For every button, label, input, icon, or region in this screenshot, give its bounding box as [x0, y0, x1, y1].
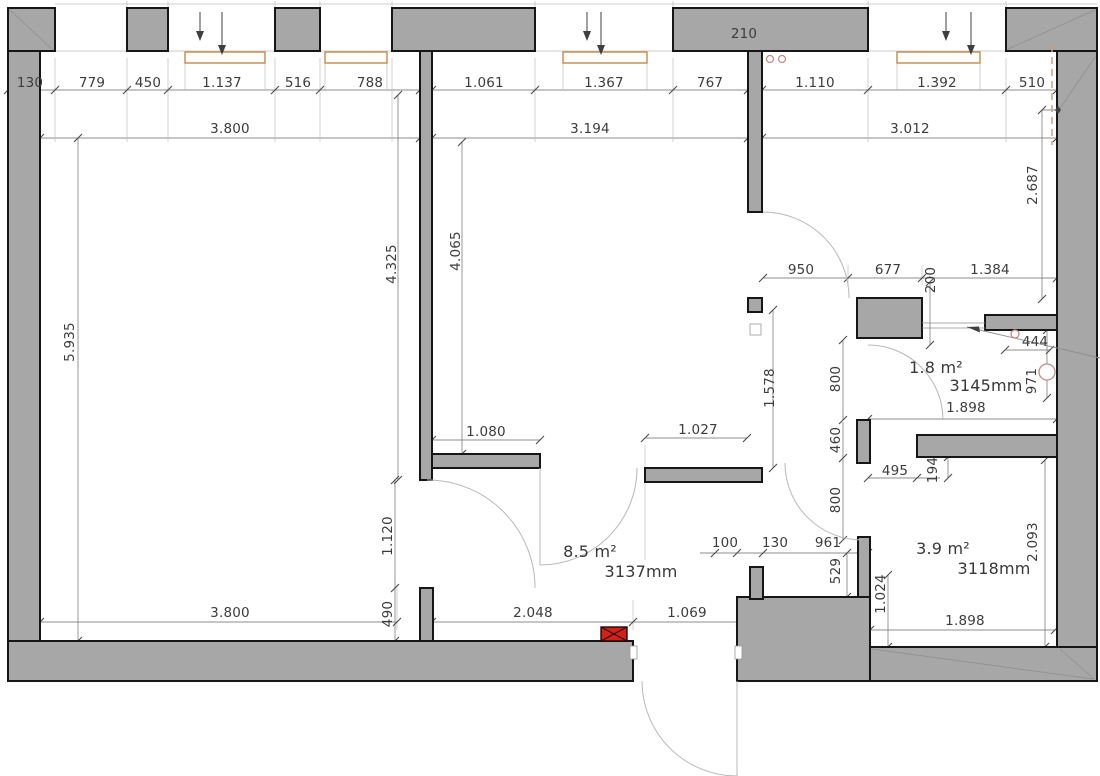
room-area-label: 1.8 m²: [909, 358, 963, 377]
wall-segment: [748, 51, 762, 212]
wall-segment: [985, 315, 1057, 330]
wall-segment: [645, 468, 762, 482]
dim-label: 1.027: [678, 422, 718, 438]
door-arc: [642, 681, 737, 776]
window-sill: [185, 52, 265, 63]
dim-label: 495: [882, 463, 908, 479]
dim-label: 1.578: [762, 368, 778, 408]
dim-label: 194: [925, 457, 941, 483]
window-sill: [563, 52, 647, 63]
dim-label: 4.325: [384, 244, 400, 284]
wall-segment: [127, 8, 168, 51]
dim-label: 510: [1019, 75, 1045, 91]
window-sill: [325, 52, 387, 63]
dim-label: 1.061: [464, 75, 504, 91]
dim-label: 1.120: [380, 516, 396, 556]
wall-segment: [857, 298, 922, 338]
dim-label: 767: [697, 75, 723, 91]
dim-label: 100: [712, 535, 738, 551]
dim-label: 788: [357, 75, 383, 91]
door-arc: [868, 345, 943, 420]
down-arrow-icon: [196, 31, 204, 41]
wall-segment: [1057, 8, 1097, 681]
dim-label: 200: [923, 267, 939, 293]
wall-segment: [8, 8, 40, 681]
room-length-label: 3137mm: [604, 562, 677, 581]
wall-segment: [432, 454, 540, 468]
dim-label: 779: [79, 75, 105, 91]
wall-segment: [750, 567, 763, 599]
door-arc: [763, 212, 849, 298]
dim-label: 516: [285, 75, 311, 91]
dim-label: 1.024: [873, 574, 889, 614]
dim-label: 130: [762, 535, 788, 551]
dimension-lines: [4, 40, 1096, 651]
room-labels: 8.5 m² 3137mm 1.8 m² 3145mm 3.9 m² 3118m…: [563, 358, 1030, 581]
wall-segment: [275, 8, 320, 51]
dim-label: 2.093: [1025, 522, 1041, 562]
wall-segment: [8, 641, 633, 681]
wall-segment: [748, 298, 762, 312]
dim-label: 1.069: [667, 605, 707, 621]
dim-label: 2.687: [1025, 165, 1041, 205]
wall-segment: [420, 51, 432, 480]
dim-label: 800: [828, 487, 844, 513]
dim-label: 444: [1022, 334, 1048, 350]
dim-label: 1.392: [917, 75, 957, 91]
window-sill: [897, 52, 980, 63]
floor-plan-drawing: 130 779 450 1.137 516 788 1.061 1.367 76…: [0, 0, 1100, 776]
wall-segment: [737, 597, 870, 681]
wall-segment: [392, 8, 535, 51]
wall-segment: [420, 588, 433, 641]
down-arrow-icon: [583, 31, 591, 41]
window-sills: [185, 52, 980, 63]
dim-label: 3.194: [570, 121, 610, 137]
floor-plan-canvas: 130 779 450 1.137 516 788 1.061 1.367 76…: [0, 0, 1100, 776]
dim-label: 1.137: [202, 75, 242, 91]
room-length-label: 3145mm: [949, 376, 1022, 395]
dim-label: 529: [828, 558, 844, 584]
dim-label: 800: [828, 366, 844, 392]
room-area-label: 8.5 m²: [563, 542, 617, 561]
dim-label: 3.800: [210, 121, 250, 137]
fixture-circle: [1011, 330, 1019, 338]
wall-socket: [750, 324, 761, 335]
fixture-circle: [779, 56, 786, 63]
dim-label: 2.048: [513, 605, 553, 621]
dim-label: 450: [135, 75, 161, 91]
wall-segment: [673, 8, 868, 51]
dim-label: 950: [788, 262, 814, 278]
dim-label: 1.367: [584, 75, 624, 91]
dim-label: 1.898: [946, 400, 986, 416]
dim-label: 130: [17, 75, 43, 91]
dim-label: 961: [815, 535, 841, 551]
wall-segment: [858, 537, 870, 597]
fixture-circle: [1039, 364, 1055, 380]
wall-corner-diagonals: [10, 10, 1095, 679]
dim-label: 3.800: [210, 605, 250, 621]
dim-label: 460: [828, 427, 844, 453]
dim-label: 1.898: [945, 613, 985, 629]
room-area-label: 3.9 m²: [916, 539, 970, 558]
dim-label: 210: [731, 26, 757, 42]
wall-segment: [917, 435, 1057, 457]
dim-label: 490: [380, 601, 396, 627]
door-arc: [785, 463, 862, 540]
door-arc: [427, 480, 535, 588]
wall-segment: [857, 420, 870, 463]
dim-label: 1.080: [466, 424, 506, 440]
dim-label: 1.384: [970, 262, 1010, 278]
dim-label: 4.065: [448, 231, 464, 271]
door-jamb: [630, 646, 637, 659]
room-length-label: 3118mm: [957, 559, 1030, 578]
door-swings: [427, 212, 943, 776]
door-jamb: [735, 646, 742, 659]
down-arrow-icon: [942, 31, 950, 41]
dim-label: 5.935: [62, 322, 78, 362]
dim-label: 3.012: [890, 121, 930, 137]
fixture-circle: [767, 56, 774, 63]
dim-label: 677: [875, 262, 901, 278]
top-reference-line: [55, 1, 1097, 8]
walls: [8, 8, 1097, 681]
dim-label: 1.110: [795, 75, 835, 91]
dim-label: 971: [1024, 368, 1040, 394]
